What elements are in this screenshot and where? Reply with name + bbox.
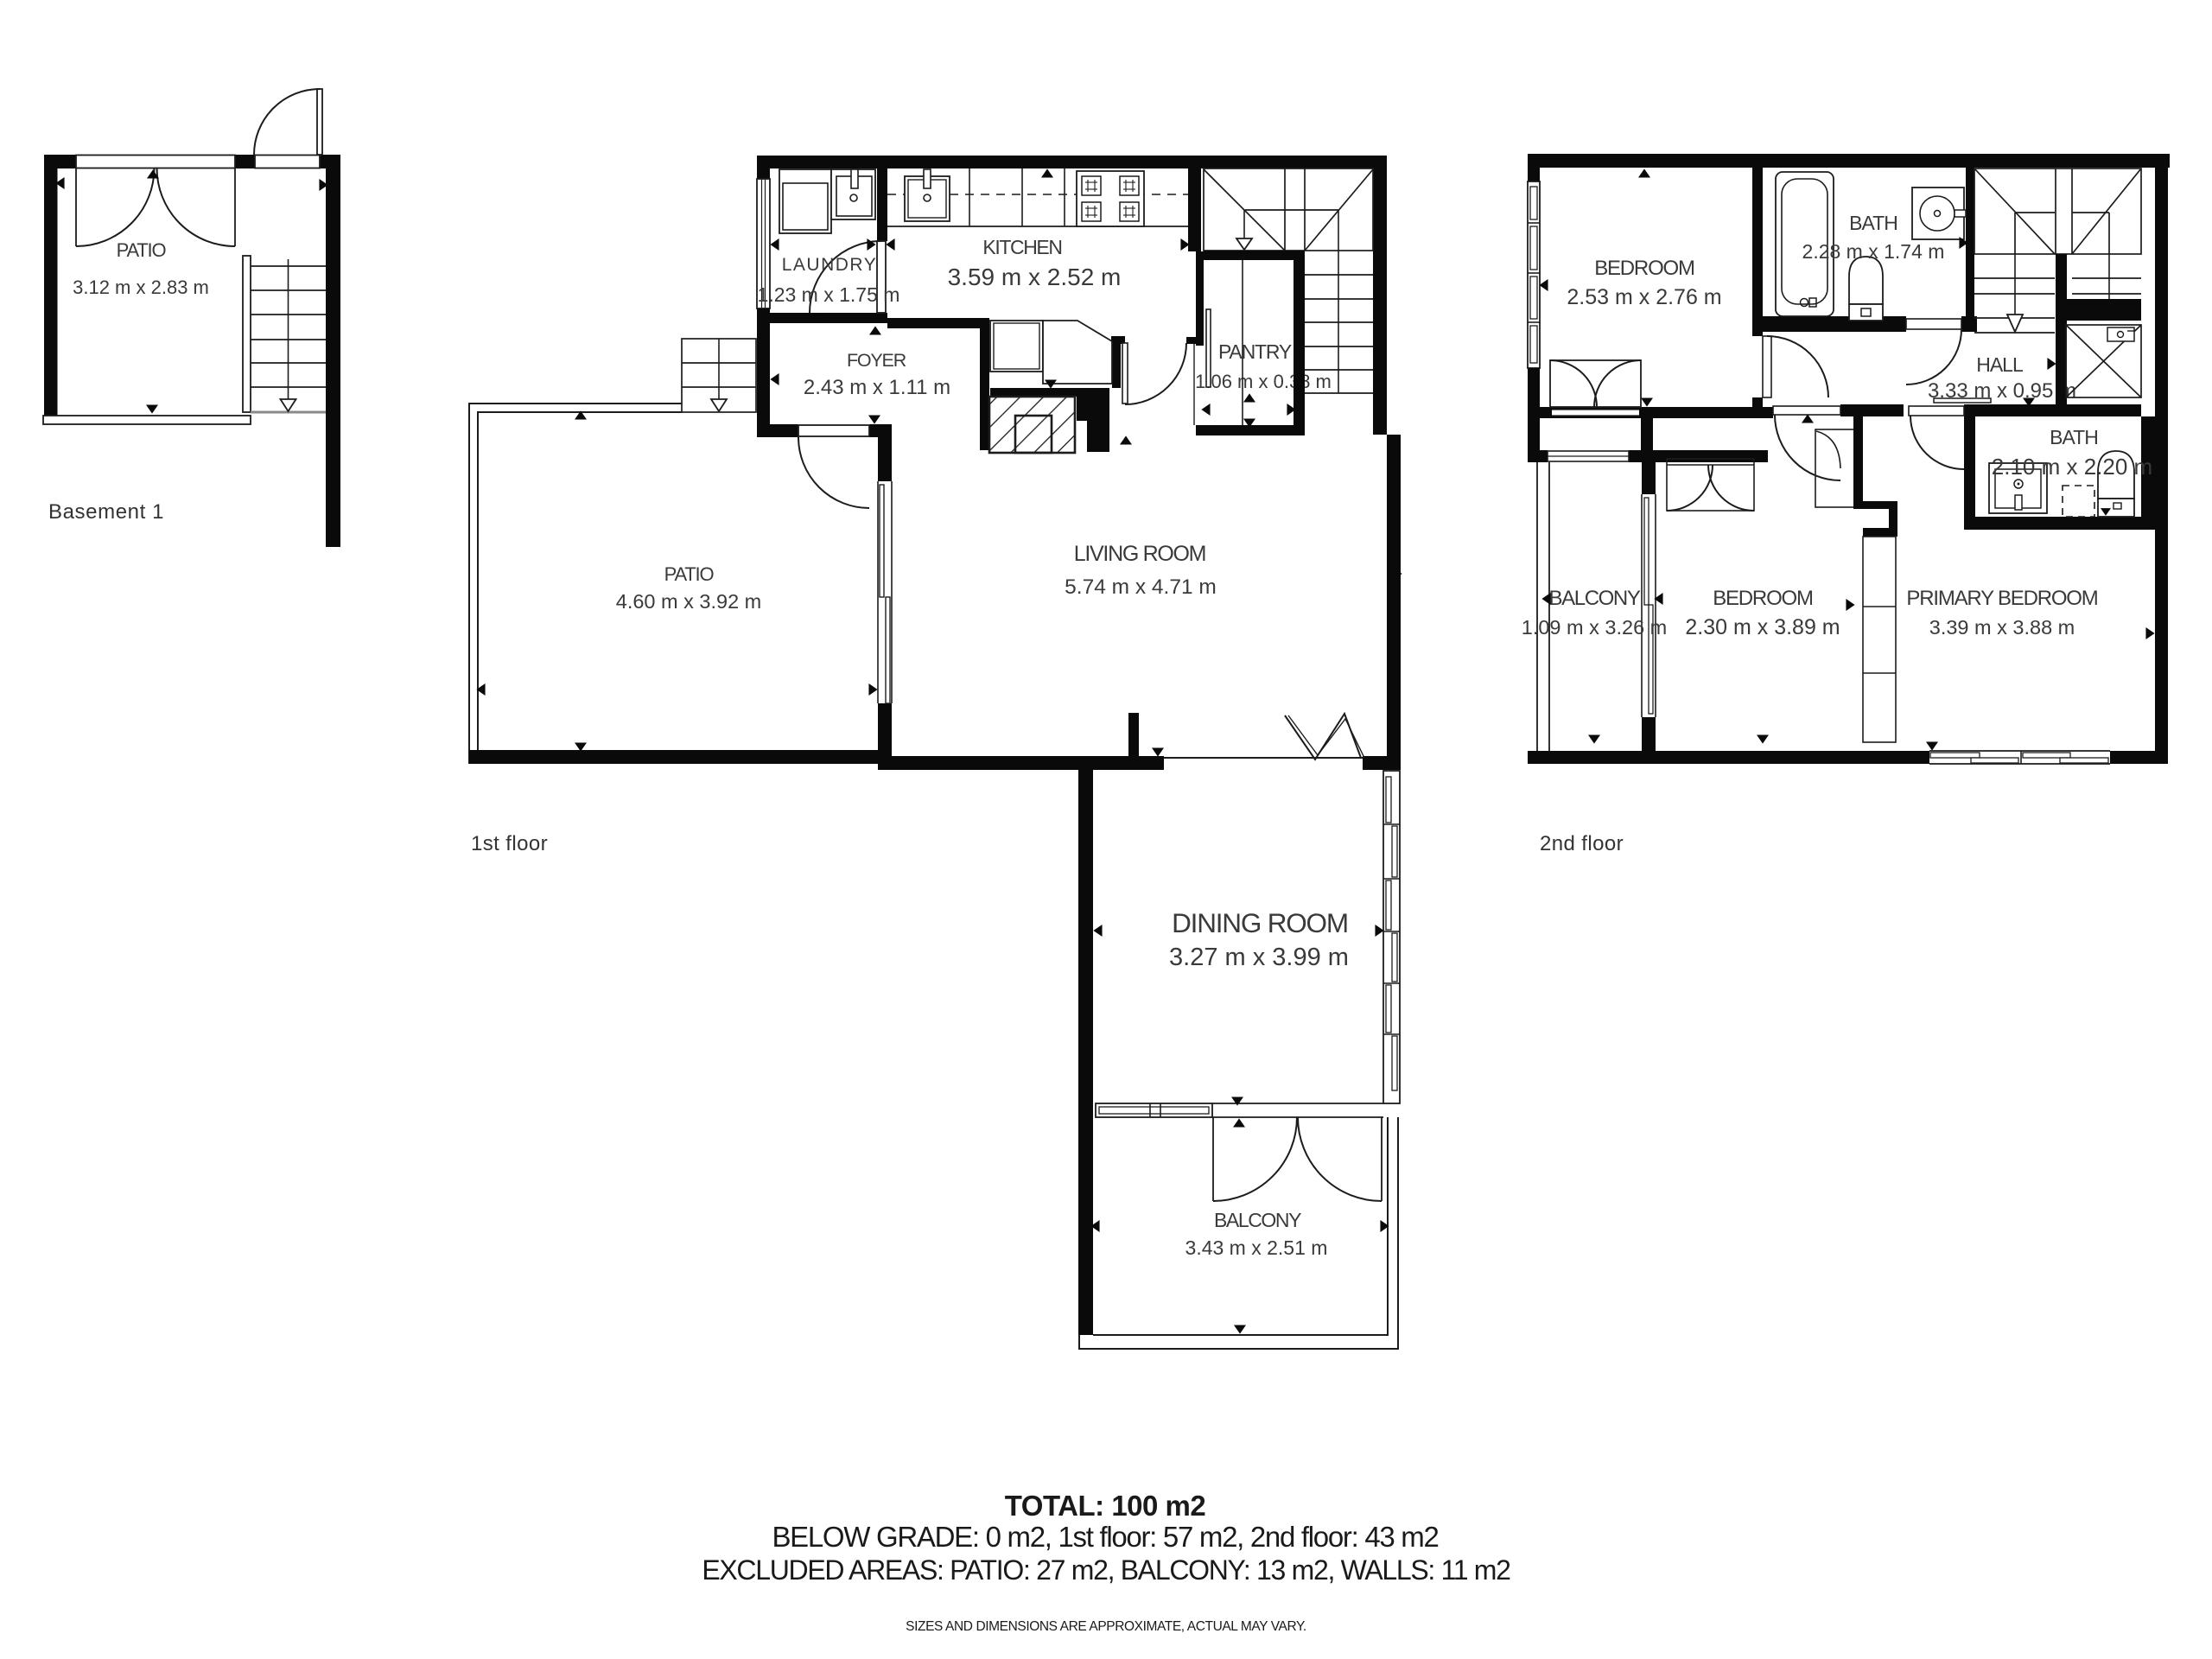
svg-text:3.12 m x 2.83 m: 3.12 m x 2.83 m (73, 276, 209, 298)
svg-text:2nd floor: 2nd floor (1540, 832, 1624, 855)
svg-text:BALCONY: BALCONY (1214, 1209, 1301, 1231)
svg-text:2.43 m x 1.11 m: 2.43 m x 1.11 m (804, 376, 950, 399)
svg-text:2.30 m x 3.89 m: 2.30 m x 3.89 m (1685, 615, 1840, 639)
svg-text:LIVING ROOM: LIVING ROOM (1074, 542, 1205, 566)
svg-text:PATIO: PATIO (117, 239, 167, 261)
svg-text:TOTAL: 100 m2: TOTAL: 100 m2 (1005, 1490, 1206, 1522)
svg-text:3.43 m x 2.51 m: 3.43 m x 2.51 m (1185, 1236, 1328, 1259)
svg-text:BALCONY: BALCONY (1549, 587, 1641, 610)
svg-text:PANTRY: PANTRY (1218, 340, 1292, 363)
svg-text:1.09 m x 3.26 m: 1.09 m x 3.26 m (1522, 616, 1668, 639)
svg-text:SIZES AND DIMENSIONS ARE APPRO: SIZES AND DIMENSIONS ARE APPROXIMATE, AC… (906, 1619, 1306, 1634)
svg-text:BEDROOM: BEDROOM (1713, 587, 1813, 610)
svg-text:3.39 m x 3.88 m: 3.39 m x 3.88 m (1929, 616, 2075, 639)
svg-text:BATH: BATH (1849, 212, 1897, 234)
svg-text:1.23 m x 1.75 m: 1.23 m x 1.75 m (758, 283, 900, 306)
svg-text:LAUNDRY: LAUNDRY (782, 255, 877, 275)
svg-text:2.53 m x 2.76 m: 2.53 m x 2.76 m (1567, 285, 1721, 309)
svg-text:3.27 m x 3.99 m: 3.27 m x 3.99 m (1169, 944, 1349, 971)
svg-text:3.59 m x 2.52 m: 3.59 m x 2.52 m (948, 264, 1122, 290)
svg-text:BATH: BATH (2050, 426, 2098, 448)
svg-text:Basement 1: Basement 1 (48, 500, 164, 524)
svg-text:BEDROOM: BEDROOM (1594, 257, 1694, 280)
svg-text:DINING ROOM: DINING ROOM (1172, 907, 1348, 938)
svg-text:BELOW GRADE: 0 m2, 1st floor:: BELOW GRADE: 0 m2, 1st floor: 57 m2, 2nd… (772, 1521, 1438, 1553)
svg-text:1st floor: 1st floor (471, 832, 548, 855)
svg-text:2.10 m x 2.20 m: 2.10 m x 2.20 m (1992, 454, 2152, 480)
svg-text:2.28 m x 1.74 m: 2.28 m x 1.74 m (1802, 240, 1945, 263)
svg-text:1.06 m x 0.38 m: 1.06 m x 0.38 m (1195, 371, 1332, 392)
svg-text:4.60 m x 3.92 m: 4.60 m x 3.92 m (616, 590, 762, 613)
svg-text:FOYER: FOYER (847, 350, 906, 371)
svg-text:PRIMARY BEDROOM: PRIMARY BEDROOM (1906, 587, 2097, 610)
svg-text:HALL: HALL (1976, 353, 2024, 376)
svg-text:EXCLUDED AREAS: PATIO: 27 m2,: EXCLUDED AREAS: PATIO: 27 m2, BALCONY: 1… (702, 1554, 1510, 1586)
svg-text:5.74 m x 4.71 m: 5.74 m x 4.71 m (1065, 575, 1217, 599)
svg-text:PATIO: PATIO (664, 563, 715, 585)
svg-text:KITCHEN: KITCHEN (982, 236, 1061, 258)
